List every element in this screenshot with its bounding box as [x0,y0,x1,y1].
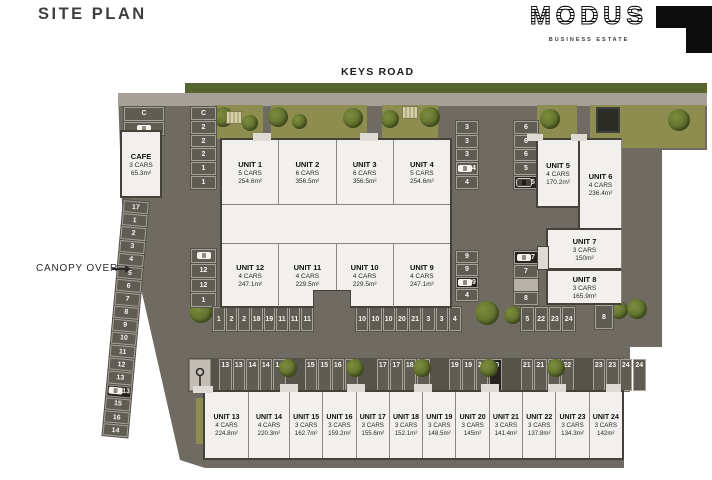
unit-cars: 3 CARS [573,247,596,254]
unit-cars: 3 CARS [495,422,517,429]
parking-spot: 2 [191,121,216,134]
modus-logo: MODUS [523,2,655,31]
parking-spot: 9 [456,251,478,263]
unit-block: UNIT 183 CARS152.1m² [390,392,423,458]
unit-name: UNIT 16 [326,414,352,421]
tree-icon [420,107,440,127]
parking-spot: 12 [191,264,216,278]
pole-icon [194,367,206,387]
parking-spot: 1 [191,293,216,307]
parking-spot: 2 [120,226,146,240]
parking-spot: 24 [633,359,646,391]
parking-spot: 7 [514,251,538,264]
parking-spot: 17 [390,359,403,391]
parking-spot: 4 [456,289,478,301]
parking-spot: 8 [514,292,538,305]
unit-name: UNIT 10 [351,263,379,272]
parking-spot [191,249,216,263]
east-parking-row: 5 22 23 24 [520,306,576,332]
central-south-right-column: 7 7 8 [513,250,539,306]
unit-area: 145m² [464,430,482,437]
unit-block: UNIT 64 CARS236.4m² [578,138,622,230]
unit-name: UNIT 23 [559,414,585,421]
unit-block: UNIT 83 CARS165.9m² [546,269,622,305]
parking-spot: 16 [104,410,130,424]
unit-name: UNIT 5 [546,161,570,170]
unit-cars: 6 CARS [353,170,376,177]
parking-spot: 1 [191,162,216,175]
unit-cars: 4 CARS [589,182,612,189]
parking-spot: 18 [251,307,263,331]
parking-spot: 1 [191,176,216,189]
unit-cars: 3 CARS [561,422,583,429]
unit-area: 229.5m² [353,281,377,288]
logo-mark [656,6,688,28]
parking-spot: 12 [108,358,134,372]
tree-icon [292,114,307,129]
parking-spot: 19 [462,359,475,391]
parking-spot: 15 [305,359,318,391]
unit-area: 254.6m² [238,178,262,185]
parking-spot: 3 [456,149,478,162]
unit-cars: 3 CARS [461,422,483,429]
parking-spot: 1 [213,307,225,331]
unit-block: UNIT 163 CARS159.2m² [323,392,356,458]
parking-spot: 2 [238,307,250,331]
porch [571,134,587,141]
unit-area: 150m² [575,255,593,262]
car-icon [458,279,472,286]
porch [253,133,271,141]
unit-cars: 5 CARS [410,170,433,177]
porch [280,384,298,392]
unit-name: UNIT 14 [256,414,282,421]
parking-spot: C [191,107,216,120]
parking-spot: 21 [409,307,421,331]
parking-spot: 12 [191,279,216,293]
tree-icon [268,107,288,127]
unit-block: UNIT 223 CARS137.8m² [523,392,556,458]
tree-icon [475,301,499,325]
parking-spot: 3 [422,307,434,331]
car-icon [517,254,531,261]
unit-cars: 3 CARS [362,422,384,429]
unit-block: UNIT 26 CARS356.5m² [279,140,336,204]
parking-spot: 21 [521,359,534,391]
unit-name: UNIT 18 [393,414,419,421]
parking-spot: 19 [449,359,462,391]
unit-area: 236.4m² [589,190,613,197]
unit-block: UNIT 73 CARS150m² [546,228,622,270]
unit-area: 148.5m² [428,430,451,437]
unit-name: CAFE [131,152,151,161]
parking-spot: 4 [118,253,144,267]
unit-area: 170.2m² [546,179,570,186]
parking-spot: 9 [456,264,478,276]
unit-cars: 4 CARS [215,422,237,429]
unit-name: UNIT 21 [493,414,519,421]
central-north-left-column: 3 3 3 4 4 [455,120,479,190]
unit-name: UNIT 20 [460,414,486,421]
canopy-over-label: CANOPY OVER [36,263,118,274]
unit-area: 159.2m² [328,430,351,437]
unit-name: UNIT 1 [238,160,262,169]
unit-block: UNIT 36 CARS356.5m² [337,140,394,204]
unit-cars: 4 CARS [410,273,433,280]
building-south: UNIT 134 CARS224.8m² UNIT 144 CARS220.3m… [203,390,624,460]
parking-spot: 10 [356,307,368,331]
parking-spot: 9 [112,318,138,332]
unit-area: 229.5m² [295,281,319,288]
parking-spot: 13 [233,359,246,391]
grass-strip [196,398,203,444]
unit-area: 224.8m² [215,430,238,437]
parking-spot: 20 [396,307,408,331]
unit-block: UNIT 243 CARS142m² [590,392,622,458]
unit-cars: 3 CARS [295,422,317,429]
porch [360,133,378,141]
parking-spot: 3 [456,135,478,148]
grass-strip [622,105,705,148]
building-north: UNIT 15 CARS254.6m² UNIT 26 CARS356.5m² … [220,138,452,308]
parking-spot: 10 [111,331,137,345]
unit-area: 356.5m² [295,178,319,185]
parking-spot: 10 [369,307,381,331]
logo-tagline: BUSINESS ESTATE [523,37,655,43]
unit-cars: 5 CARS [238,170,261,177]
unit-cars: 4 CARS [238,273,261,280]
tree-icon [547,359,565,377]
parking-spot: 14 [246,359,259,391]
parking-spot: 9 [456,277,478,289]
parking-spot: 22 [535,307,548,331]
parking-spot: 19 [264,307,276,331]
unit-block: UNIT 144 CARS220.3m² [249,392,290,458]
unit-area: 155.6m² [361,430,384,437]
unit-name: UNIT 7 [573,237,597,246]
tree-icon [413,359,431,377]
unit-block: UNIT 15 CARS254.6m² [222,140,279,204]
unit-cars: 3 CARS [595,422,617,429]
unit-cars: 6 CARS [296,170,319,177]
page-title: SITE PLAN [38,5,147,24]
unit-block: UNIT 54 CARS170.2m² [536,138,579,208]
unit-block: UNIT 233 CARS134.3m² [556,392,589,458]
canopy-arrow-icon [112,268,126,270]
parking-spot: 21 [534,359,547,391]
porch [347,384,365,392]
unit-name: UNIT 6 [589,172,613,181]
unit-name: UNIT 11 [294,263,322,272]
unit-block: UNIT 193 CARS148.5m² [423,392,456,458]
unit-block: UNIT 124 CARS247.1m² [222,244,279,307]
mid-parking-row-right: 10 10 10 20 21 3 3 4 [355,306,462,332]
parking-spot: 14 [102,423,128,437]
unit-name: UNIT 3 [353,160,377,169]
parking-spot: 11 [110,345,136,359]
parking-spot: 2 [226,307,238,331]
bench-icon [226,111,242,124]
parking-spot [514,279,538,292]
tree-icon [668,109,690,131]
bench-icon [402,106,418,119]
unit-name: UNIT 9 [410,263,434,272]
unit-name: UNIT 2 [295,160,319,169]
tree-icon [627,299,647,319]
parking-spot: 3 [119,239,145,253]
unit-area: 137.8m² [528,430,551,437]
porch [548,384,566,392]
unit-block: UNIT 213 CARS141.4m² [490,392,523,458]
tree-icon [279,359,297,377]
parking-spot: 24 [620,359,633,391]
parking-spot: 5 [514,176,538,189]
car-icon [458,165,472,172]
parking-spot: 3 [456,121,478,134]
unit12-parking-column: 12 12 1 [190,248,217,308]
unit-area: 152.1m² [395,430,418,437]
parking-spot: 14 [260,359,273,391]
unit-name: UNIT 22 [526,414,552,421]
parking-spot: C [124,107,164,121]
unit-area: 141.4m² [495,430,518,437]
building-notch [313,290,351,308]
unit-cars: 3 CARS [428,422,450,429]
unit-cars: 4 CARS [258,422,280,429]
unit-block: UNIT 134 CARS224.8m² [205,392,249,458]
cafe-block: CAFE 3 CARS 65.3m² [120,130,162,198]
parking-spot: 11 [301,307,313,331]
unit-name: UNIT 17 [360,414,386,421]
parking-spot: 11 [276,307,288,331]
car-icon [517,179,531,186]
parking-spot: 6 [116,279,142,293]
central-south-left-column: 9 9 9 4 [455,250,479,302]
parking-spot: 13 [219,359,232,391]
unit-cars: 4 CARS [296,273,319,280]
logo-mark [686,6,712,53]
parking-spot: 11 [289,307,301,331]
parking-spot: 17 [123,200,149,214]
unit-area: 165.9m² [573,293,597,300]
parking-spot: 4 [449,307,461,331]
parking-spot: 8 [113,305,139,319]
tree-icon [480,359,498,377]
road-verge-strip [185,83,707,93]
unit-name: UNIT 8 [573,275,597,284]
tree-icon [540,109,560,129]
tree-icon [242,115,258,131]
unit-block: UNIT 153 CARS162.7m² [290,392,323,458]
site-plan-page: SITE PLAN MODUS BUSINESS ESTATE KEYS ROA… [0,0,712,480]
unit-name: UNIT 24 [593,414,619,421]
unit-cars: 3 CARS [395,422,417,429]
parking-spot: 13 [106,384,132,398]
unit-block: UNIT 45 CARS254.6m² [394,140,450,204]
car-icon [197,252,211,259]
porch [537,246,549,270]
unit-area: 162.7m² [295,430,318,437]
porch [193,386,213,393]
east-single-spot: 8 [594,304,614,330]
parking-spot: 6 [514,121,538,134]
unit-area: 134.3m² [561,430,584,437]
keys-road-label: KEYS ROAD [341,66,414,78]
unit-cars: 3 CARS [129,162,152,169]
parking-spot: 4 [456,176,478,189]
unit-area: 247.1m² [238,281,262,288]
porch [606,384,621,392]
porch [414,384,432,392]
unit-cars: 3 CARS [328,422,350,429]
unit-name: UNIT 13 [213,414,239,421]
mid-parking-row-left: 1 2 2 18 19 11 11 11 [212,306,314,332]
tree-icon [346,359,364,377]
unit-area: 356.5m² [353,178,377,185]
parking-spot: 13 [107,371,133,385]
north-parking-column: C 2 2 2 1 1 [190,106,217,190]
parking-spot: 15 [105,397,131,411]
parking-spot: 7 [514,265,538,278]
parking-spot: 16 [332,359,345,391]
unit-cars: 4 CARS [546,171,569,178]
unit-block: UNIT 94 CARS247.1m² [394,244,450,307]
car-icon [108,387,123,395]
parking-spot: 23 [549,307,562,331]
parking-spot: 6 [514,149,538,162]
tree-icon [381,110,399,128]
parking-spot: 24 [562,307,575,331]
unit-name: UNIT 4 [410,160,434,169]
porch [527,134,543,141]
parking-spot: 4 [456,162,478,175]
unit-cars: 3 CARS [573,285,596,292]
parking-spot: 2 [191,135,216,148]
parking-spot: 7 [114,292,140,306]
parking-spot: 1 [122,213,148,227]
unit-name: UNIT 19 [426,414,452,421]
parking-spot: 15 [318,359,331,391]
parking-spot: 8 [595,305,613,329]
unit-name: UNIT 12 [236,263,264,272]
unit-area: 220.3m² [258,430,281,437]
parking-spot: 5 [514,162,538,175]
parking-spot: 10 [383,307,395,331]
parking-spot: 2 [191,148,216,161]
unit-block: UNIT 173 CARS155.6m² [357,392,390,458]
unit-name: UNIT 15 [293,414,319,421]
unit-area: 65.3m² [131,170,151,177]
parking-spot: 17 [377,359,390,391]
bin-store [596,107,620,133]
unit-cars: 3 CARS [528,422,550,429]
unit-block: UNIT 203 CARS145m² [456,392,489,458]
unit-area: 247.1m² [410,281,434,288]
canopy-parking-lane: 17 1 2 3 4 5 6 7 8 9 10 11 12 13 13 15 1… [101,199,149,439]
unit-area: 254.6m² [410,178,434,185]
tree-icon [343,108,363,128]
parking-spot: 23 [593,359,606,391]
parking-spot: 5 [521,307,534,331]
unit-area: 142m² [597,430,615,437]
unit-cars: 4 CARS [353,273,376,280]
porch [481,384,499,392]
parking-spot: 3 [436,307,448,331]
